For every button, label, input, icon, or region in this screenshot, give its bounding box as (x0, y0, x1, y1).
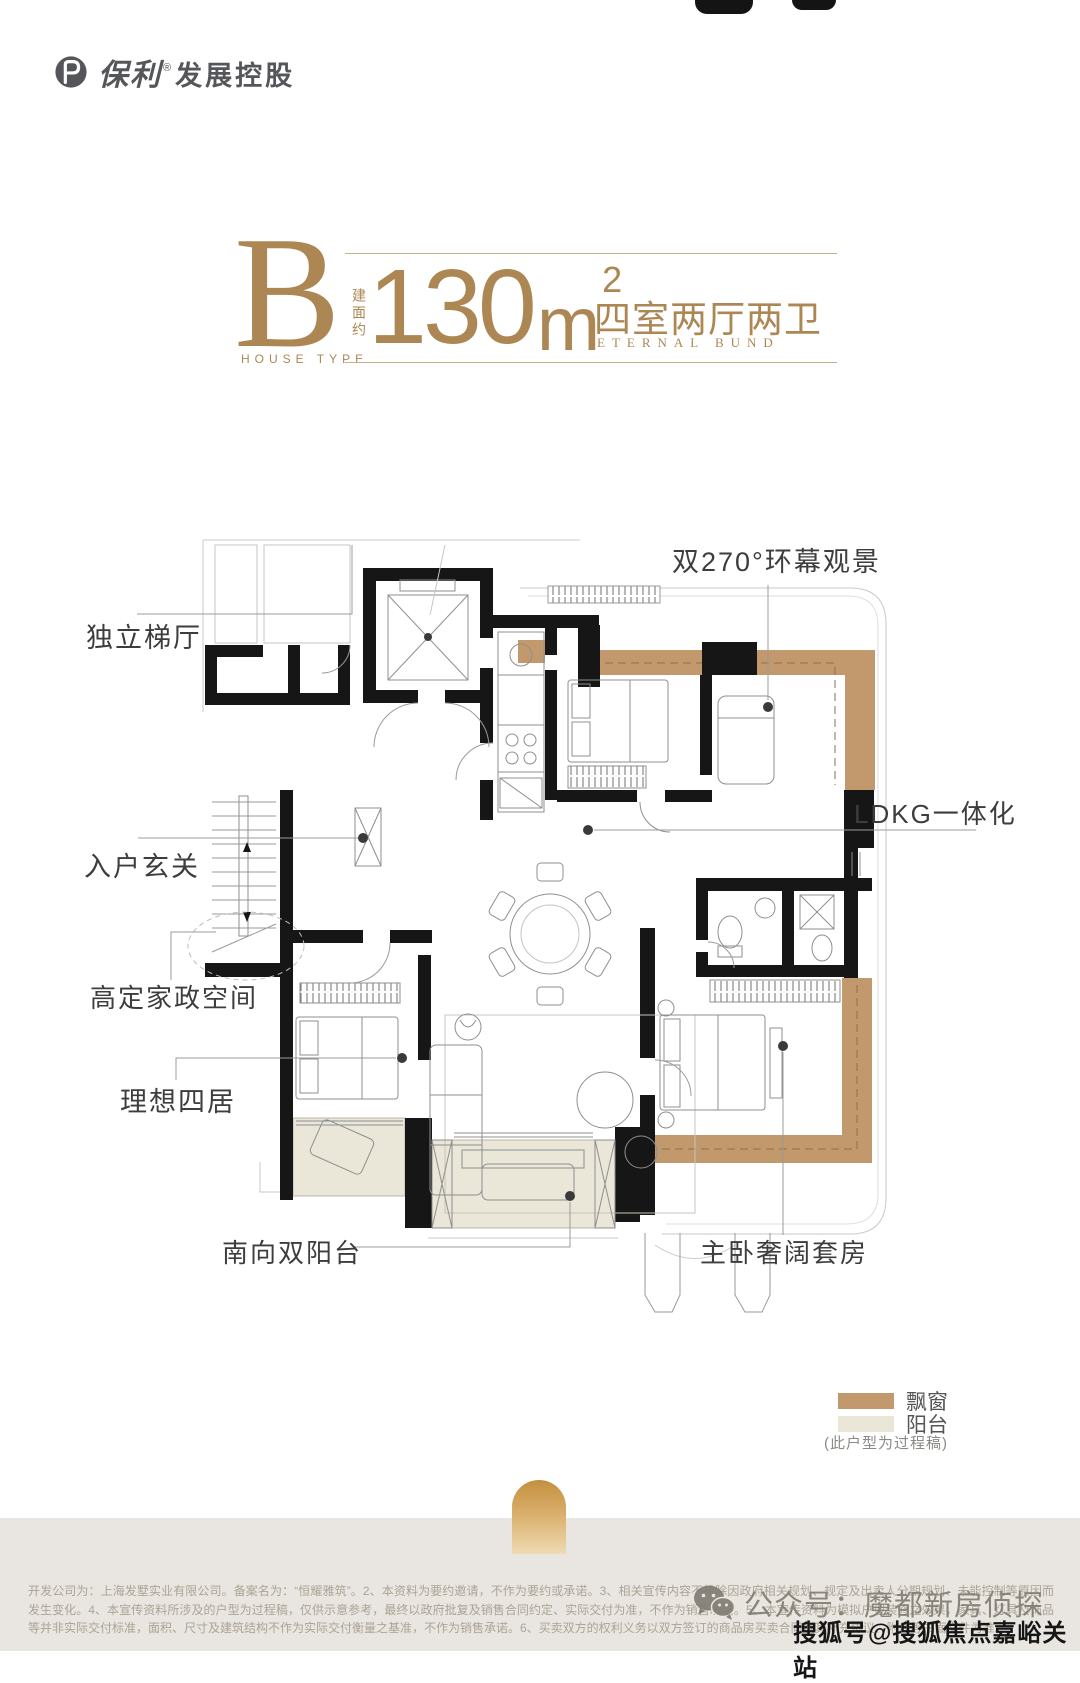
bay-window-swatch (838, 1393, 894, 1409)
label-master-suite: 主卧奢阔套房 (700, 1233, 868, 1270)
lift-lobby (215, 545, 445, 643)
label-entry: 入户玄关 (84, 845, 200, 884)
house-type-caption: HOUSE TYPE (241, 352, 368, 366)
dining-table (488, 863, 613, 1005)
bedroom-2 (568, 680, 670, 832)
arch-decoration (512, 1480, 566, 1554)
house-type-letter: B (234, 212, 341, 372)
rooms-summary-en: ETERNAL BUND (597, 335, 780, 351)
balcony-swatch (838, 1416, 894, 1432)
label-lift-lobby: 独立梯厅 (86, 616, 202, 655)
elevator (388, 580, 468, 680)
brand-name-rest: 发展控股 (175, 61, 295, 91)
label-ldkg: LDKG一体化 (854, 794, 1017, 831)
area-prefix: 建面约 (349, 288, 369, 339)
master-suite (655, 980, 840, 1128)
bay-window-dashes (605, 663, 857, 1149)
floorplan-poster: { "brand": {"name_mark": "保利", "register… (0, 0, 1080, 1651)
label-south-balcony: 南向双阳台 (222, 1233, 362, 1270)
ac-platform (548, 586, 660, 603)
area-value: 130 m 2 (368, 248, 622, 354)
area-unit: m (537, 295, 600, 354)
floor-plan (100, 500, 980, 1360)
sohu-watermark: 搜狐号@搜狐焦点嘉峪关站 (793, 1613, 1080, 1683)
brand-name-mark: 保利 (98, 59, 162, 92)
legend-note: (此户型为过程稿) (824, 1432, 948, 1453)
label-housework-space: 高定家政空间 (90, 978, 258, 1015)
brand-logo: 保利®发展控股 (54, 50, 295, 94)
brand-name: 保利®发展控股 (98, 50, 295, 94)
area-number: 130 (368, 261, 533, 354)
cropped-top-artifact (695, 0, 753, 14)
wechat-icon (692, 1583, 736, 1623)
label-ideal-rooms: 理想四居 (120, 1080, 236, 1119)
balconies (293, 1118, 615, 1228)
poly-logo-icon (54, 55, 88, 89)
bedroom-4 (296, 943, 400, 1099)
label-panoramic-view: 双270°环幕观景 (672, 540, 881, 579)
cropped-top-artifact (792, 0, 836, 10)
registered-mark: ® (163, 62, 171, 74)
